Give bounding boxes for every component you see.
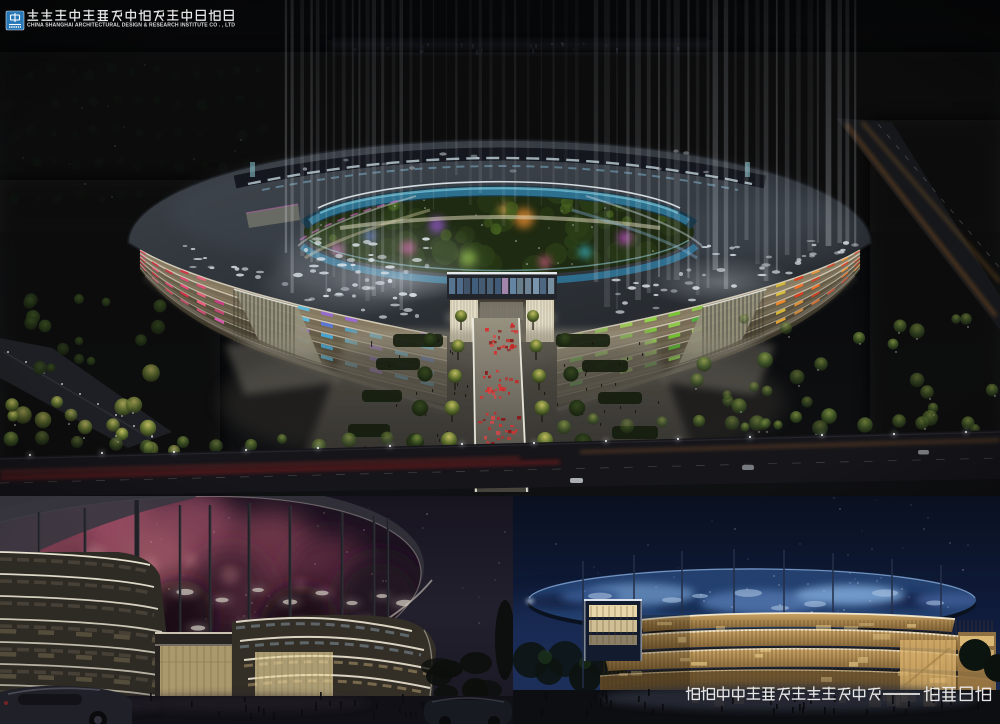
svg-text:CHINA SHANGHAI ARCHITECTURAL D: CHINA SHANGHAI ARCHITECTURAL DESIGN & RE… (27, 22, 235, 28)
